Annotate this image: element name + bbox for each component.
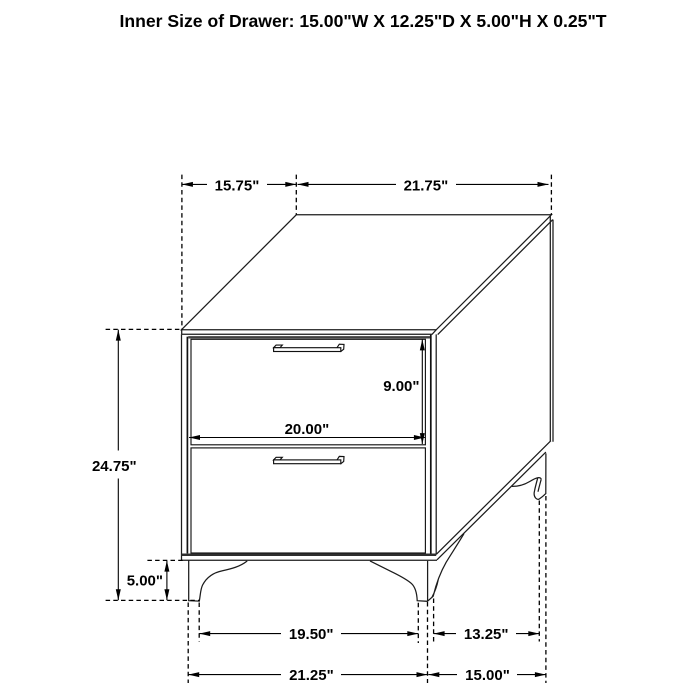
svg-text:20.00": 20.00"	[285, 421, 330, 438]
svg-text:15.75": 15.75"	[215, 178, 260, 195]
svg-text:13.25": 13.25"	[464, 626, 509, 643]
svg-text:21.25": 21.25"	[289, 667, 334, 684]
svg-text:15.00": 15.00"	[465, 667, 510, 684]
svg-text:Inner Size of Drawer: 15.00"W: Inner Size of Drawer: 15.00"W X 12.25"D …	[119, 11, 606, 31]
svg-text:24.75": 24.75"	[92, 458, 137, 475]
svg-text:19.50": 19.50"	[289, 626, 334, 643]
svg-text:21.75": 21.75"	[404, 178, 449, 195]
svg-text:5.00": 5.00"	[127, 572, 163, 589]
svg-text:9.00": 9.00"	[383, 378, 419, 395]
